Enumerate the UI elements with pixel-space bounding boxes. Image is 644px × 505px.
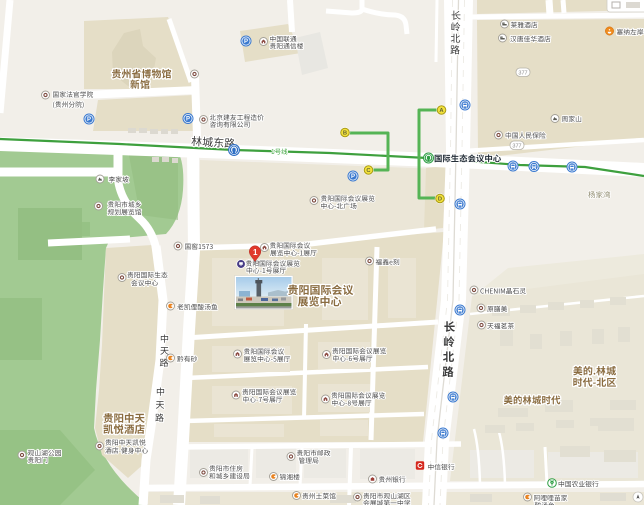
svg-text:B: B	[343, 131, 347, 137]
svg-text:D: D	[438, 197, 442, 203]
svg-text:1: 1	[253, 248, 258, 257]
svg-text:377: 377	[512, 144, 521, 150]
svg-text:377: 377	[518, 71, 527, 77]
